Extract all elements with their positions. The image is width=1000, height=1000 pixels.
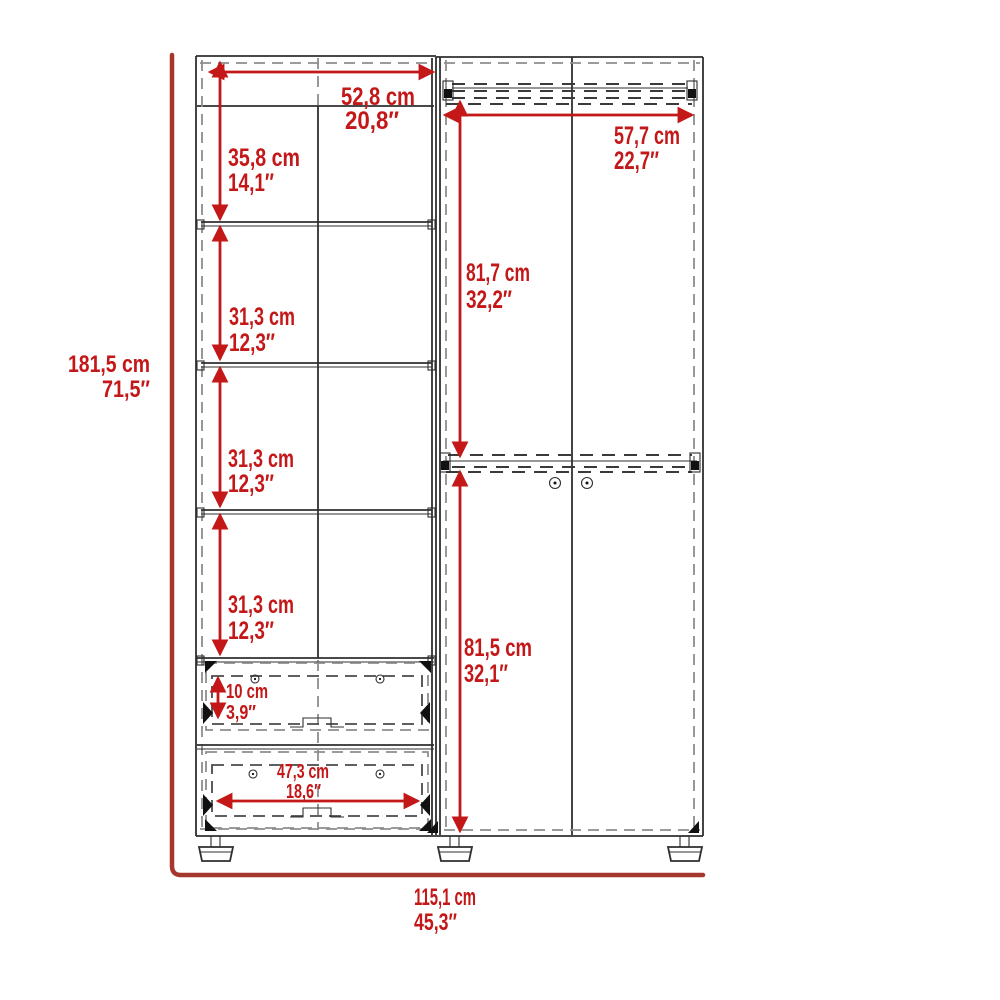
label-shelf-section-1-in: 12,3″ xyxy=(229,329,275,357)
label-overall-width-cm: 115,1 cm xyxy=(414,884,476,911)
foot-right xyxy=(668,836,702,861)
label-shelf-section-2-cm: 31,3 cm xyxy=(228,445,294,473)
shelf-3 xyxy=(197,508,435,517)
door-handles xyxy=(550,478,593,489)
label-drawer-width-in: 18,6″ xyxy=(286,781,321,803)
label-overall-height-in: 71,5″ xyxy=(102,376,150,403)
label-shelf-section-2-in: 12,3″ xyxy=(228,470,274,498)
wardrobe-dimension-diagram: 52,8 cm 20,8″ 35,8 cm 14,1″ 31,3 cm 12,3… xyxy=(0,0,1000,1000)
label-right-upper-in: 32,2″ xyxy=(466,286,512,314)
label-overall-height-cm: 181,5 cm xyxy=(68,351,150,378)
diagram-canvas: 52,8 cm 20,8″ 35,8 cm 14,1″ 31,3 cm 12,3… xyxy=(0,0,1000,1000)
foot-left xyxy=(199,836,233,861)
feet xyxy=(199,836,702,861)
label-right-lower-in: 32,1″ xyxy=(464,660,508,688)
label-left-top-width-in: 20,8″ xyxy=(345,107,399,135)
label-overall-width-in: 45,3″ xyxy=(414,909,457,936)
shelf-2 xyxy=(197,361,435,370)
hanging-rod-middle xyxy=(440,453,700,472)
bottom-corner-fittings xyxy=(427,821,699,833)
label-left-top-section-cm: 35,8 cm xyxy=(228,144,300,172)
label-shelf-section-3-cm: 31,3 cm xyxy=(228,591,294,619)
label-right-width-in: 22,7″ xyxy=(614,147,659,175)
label-left-top-section-in: 14,1″ xyxy=(228,169,274,197)
label-shelf-section-3-in: 12,3″ xyxy=(228,617,274,645)
label-shelf-section-1-cm: 31,3 cm xyxy=(229,303,295,331)
shelf-1 xyxy=(197,220,435,229)
label-drawer-height-in: 3,9″ xyxy=(226,702,256,724)
label-drawer-width-cm: 47,3 cm xyxy=(277,761,329,783)
label-right-lower-cm: 81,5 cm xyxy=(464,634,532,662)
label-right-upper-cm: 81,7 cm xyxy=(466,259,530,287)
label-drawer-height-cm: 10 cm xyxy=(226,681,268,703)
label-right-width-cm: 57,7 cm xyxy=(614,122,680,150)
hanging-rod-top xyxy=(443,81,697,104)
foot-center xyxy=(438,836,472,861)
